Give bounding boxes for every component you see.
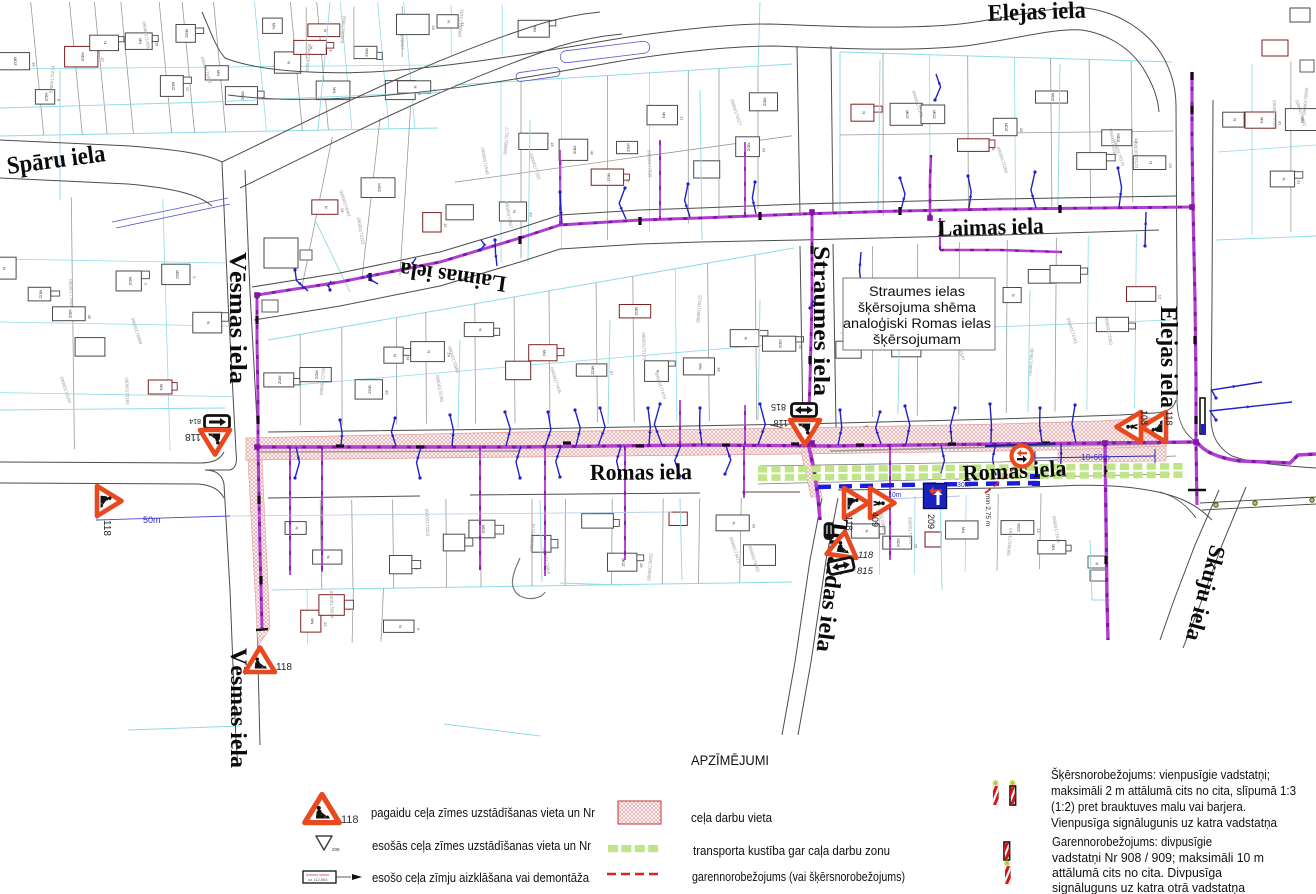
svg-text:09000173173: 09000173173 (641, 332, 647, 360)
svg-text:28: 28 (639, 563, 644, 568)
svg-text:N: N (2, 267, 7, 270)
svg-text:118: 118 (185, 431, 201, 442)
svg-text:MDZ: MDZ (896, 538, 901, 547)
svg-text:Laimas iela: Laimas iela (937, 213, 1044, 241)
svg-text:N: N (512, 210, 517, 213)
svg-text:N: N (103, 41, 108, 44)
svg-text:32: 32 (1036, 528, 1041, 533)
svg-text:MN: MN (332, 87, 337, 93)
svg-text:19: 19 (32, 62, 37, 67)
svg-text:N: N (393, 354, 398, 357)
svg-text:šķērsojumam: šķērsojumam (873, 332, 961, 347)
svg-text:18: 18 (550, 142, 555, 147)
svg-text:MDZ: MDZ (591, 366, 596, 375)
svg-text:MDZ: MDZ (572, 145, 577, 154)
svg-text:N: N (1149, 161, 1154, 164)
svg-text:MDZ: MDZ (932, 110, 937, 119)
svg-text:MDZ: MDZ (905, 110, 910, 119)
svg-text:12: 12 (443, 223, 448, 228)
svg-text:12: 12 (1158, 295, 1163, 300)
svg-text:43: 43 (751, 524, 756, 529)
svg-text:43: 43 (529, 212, 534, 217)
svg-text:Elejas iela: Elejas iela (1155, 306, 1181, 408)
svg-text:N: N (732, 521, 737, 524)
svg-text:118: 118 (1164, 411, 1174, 425)
svg-text:815: 815 (857, 566, 874, 577)
svg-text:N: N (1282, 178, 1287, 181)
svg-text:MDZ: MDZ (377, 183, 382, 192)
svg-text:MDZ: MDZ (171, 82, 176, 91)
svg-text:09000178019: 09000178019 (329, 591, 335, 619)
svg-text:N: N (1011, 294, 1016, 297)
svg-text:MDZ: MDZ (778, 339, 783, 348)
svg-text:MDZ: MDZ (185, 29, 190, 38)
svg-text:N: N (478, 328, 483, 331)
svg-text:MDZ: MDZ (315, 370, 320, 379)
svg-text:esošo ceļa zīmju aizklāšana va: esošo ceļa zīmju aizklāšana vai demontāž… (372, 871, 589, 885)
svg-text:MN: MN (216, 70, 221, 76)
svg-text:409: 409 (870, 512, 880, 527)
svg-text:MDZ: MDZ (626, 143, 631, 152)
svg-text:27: 27 (609, 371, 614, 376)
svg-text:ceļa darbu vieta: ceļa darbu vieta (691, 811, 772, 825)
svg-text:N: N (862, 111, 867, 114)
svg-text:Straumes ielas: Straumes ielas (869, 284, 965, 299)
svg-text:45: 45 (87, 315, 92, 320)
svg-text:22: 22 (323, 622, 328, 627)
svg-text:MDZ: MDZ (68, 309, 73, 318)
svg-text:MDZ: MDZ (175, 270, 180, 279)
svg-text:N: N (413, 85, 418, 88)
svg-text:09000173070: 09000173070 (907, 517, 913, 545)
svg-text:34: 34 (761, 148, 766, 153)
svg-text:N: N (287, 61, 292, 64)
svg-text:38: 38 (717, 367, 722, 372)
svg-text:N: N (326, 556, 331, 559)
svg-text:MDZ: MDZ (481, 525, 486, 534)
svg-text:vadstatņi Nr 908 / 909; maksim: vadstatņi Nr 908 / 909; maksimāli 10 m (1052, 851, 1264, 865)
svg-text:10-60m: 10-60m (1081, 452, 1110, 462)
svg-text:50m: 50m (143, 515, 161, 525)
svg-text:118: 118 (774, 418, 788, 428)
svg-text:24: 24 (405, 356, 410, 361)
svg-text:MDZ: MDZ (634, 307, 639, 316)
svg-text:MN: MN (698, 363, 703, 369)
svg-text:MDZ: MDZ (13, 57, 18, 66)
svg-text:Garennorobežojums: divpusīgie: Garennorobežojums: divpusīgie (1052, 835, 1212, 849)
svg-text:N: N (864, 530, 869, 533)
svg-text:36: 36 (431, 25, 436, 30)
svg-text:26: 26 (1019, 128, 1024, 133)
svg-text:MDZ: MDZ (1051, 93, 1056, 102)
svg-text:MDZ: MDZ (240, 91, 245, 100)
svg-text:MN: MN (961, 527, 966, 533)
svg-text:N: N (324, 206, 329, 209)
svg-text:garennorobežojums (vai šķērsno: garennorobežojums (vai šķērsnorobežojums… (692, 870, 905, 884)
svg-text:25: 25 (914, 543, 919, 548)
svg-text:118: 118 (844, 516, 854, 530)
svg-text:esošās ceļa zīmes uzstādīšanas: esošās ceļa zīmes uzstādīšanas vieta un … (372, 839, 591, 853)
svg-text:šķērsojuma shēma: šķērsojuma shēma (858, 300, 977, 315)
svg-text:27: 27 (100, 57, 105, 62)
svg-text:MDZ: MDZ (1016, 523, 1021, 532)
svg-text:APZĪMĒJUMI: APZĪMĒJUMI (691, 752, 769, 768)
svg-text:MN: MN (661, 112, 666, 118)
svg-text:118: 118 (858, 550, 874, 561)
svg-text:31: 31 (1297, 180, 1302, 185)
svg-text:09000172192: 09000172192 (124, 377, 130, 405)
svg-text:signāluguns uz katra otrā vads: signāluguns uz katra otrā vadstatņa (1052, 881, 1245, 894)
svg-text:min 2,75 m: min 2,75 m (984, 494, 991, 526)
svg-text:Romas iela: Romas iela (590, 459, 693, 485)
svg-text:N: N (1233, 118, 1238, 121)
svg-text:MDZ: MDZ (128, 277, 133, 286)
svg-text:MDZ: MDZ (747, 142, 752, 151)
svg-text:814: 814 (189, 417, 201, 424)
svg-text:N: N (744, 337, 749, 340)
svg-text:26: 26 (154, 42, 159, 47)
svg-text:208: 208 (332, 847, 340, 852)
svg-text:maksimāli 2 m attālumā cits no: maksimāli 2 m attālumā cits no cita, slī… (1051, 784, 1296, 798)
svg-text:108: 108 (1139, 410, 1149, 425)
svg-text:MDZ: MDZ (80, 52, 85, 61)
svg-text:09000179362: 09000179362 (1272, 100, 1278, 128)
svg-text:Elejas iela: Elejas iela (987, 0, 1086, 27)
svg-text:46: 46 (384, 390, 389, 395)
svg-text:118: 118 (276, 662, 292, 673)
svg-text:N: N (427, 350, 432, 353)
svg-text:209: 209 (926, 514, 936, 529)
svg-text:MN: MN (1051, 544, 1056, 550)
svg-text:16: 16 (340, 208, 345, 213)
svg-text:Šķērsnorobežojums: vienpusīgie: Šķērsnorobežojums: vienpusīgie vadstatņi… (1051, 767, 1270, 782)
svg-text:MN: MN (138, 38, 143, 44)
svg-text:MDZ: MDZ (39, 290, 44, 299)
svg-text:23: 23 (1168, 163, 1173, 168)
svg-text:MN: MN (542, 350, 547, 356)
svg-text:N: N (295, 527, 300, 530)
svg-text:09000177598: 09000177598 (647, 150, 653, 178)
svg-text:attālumā cits no cita. Divpusī: attālumā cits no cita. Divpusīga (1052, 866, 1222, 880)
svg-text:MN: MN (271, 23, 276, 29)
svg-text:Straumes iela: Straumes iela (809, 246, 834, 397)
svg-text:MDZ: MDZ (364, 48, 369, 57)
svg-text:09000173253: 09000173253 (424, 509, 430, 537)
svg-text:118: 118 (101, 520, 112, 536)
svg-text:N: N (447, 20, 452, 23)
svg-text:09000177604: 09000177604 (68, 279, 74, 307)
svg-text:MDZ: MDZ (606, 173, 611, 182)
svg-text:Vēsmas iela: Vēsmas iela (224, 252, 250, 384)
svg-text:Vienpusīga signālugunis uz kat: Vienpusīga signālugunis uz katra vadstat… (1051, 816, 1277, 830)
svg-text:09000178123: 09000178123 (1133, 141, 1139, 169)
svg-text:(1:2) pret brauktuves malu vai: (1:2) pret brauktuves malu vai barjera. (1051, 800, 1246, 814)
svg-text:transporta kustība gar caļa da: transporta kustība gar caļa darbu zonu (693, 844, 890, 858)
svg-text:MN: MN (159, 384, 164, 390)
svg-text:MDZ: MDZ (762, 97, 767, 106)
svg-text:MDZ: MDZ (278, 376, 283, 385)
svg-text:MDZ: MDZ (368, 385, 373, 394)
svg-text:N: N (398, 625, 403, 628)
svg-text:MN: MN (1259, 117, 1264, 123)
svg-text:N: N (1096, 561, 1099, 566)
svg-text:N: N (206, 321, 211, 324)
svg-text:815: 815 (771, 402, 786, 412)
svg-text:MN: MN (310, 618, 315, 624)
svg-text:analoģiski Romas ielas: analoģiski Romas ielas (843, 316, 991, 331)
svg-text:MDZ: MDZ (1004, 123, 1009, 132)
svg-text:118: 118 (341, 814, 359, 826)
svg-text:uz 112,803: uz 112,803 (308, 877, 328, 882)
svg-text:pagaidu ceļa zīmes uzstādīšana: pagaidu ceļa zīmes uzstādīšanas vieta un… (371, 806, 595, 820)
svg-text:40: 40 (590, 151, 595, 156)
